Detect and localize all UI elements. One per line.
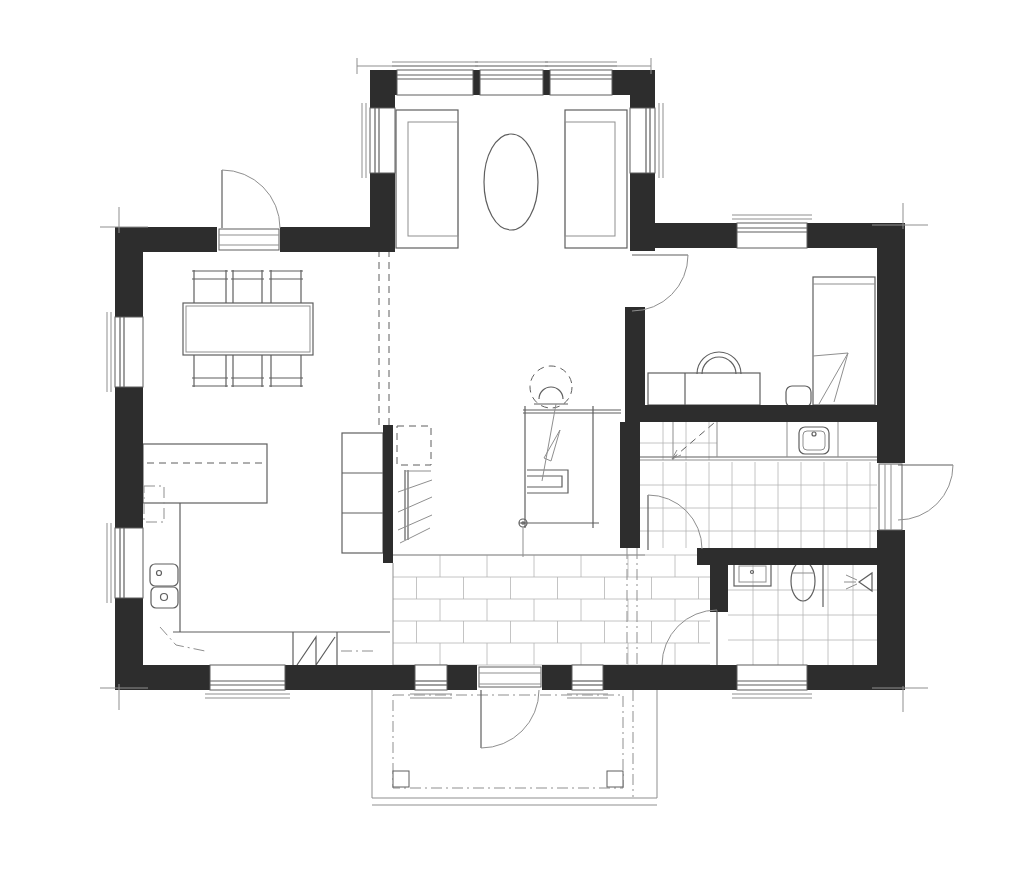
dining-table: [186, 306, 310, 352]
wall-segment: [630, 70, 655, 108]
utility-appliance-space: [672, 423, 714, 459]
floor-plan-page: [0, 0, 1024, 884]
dining-table: [183, 303, 313, 355]
door-main-entrance-swing-arc: [481, 690, 539, 748]
hall-coat-rack: [398, 497, 432, 512]
porch: [372, 690, 657, 805]
window-sunroom-top-2: [480, 70, 543, 95]
wall-segment: [543, 70, 550, 95]
door-bedroom-swing-arc: [632, 255, 688, 311]
window-sunroom-top-3: [550, 70, 612, 95]
window-kitchen-left: [115, 528, 143, 598]
sunroom-sofa-left: [408, 122, 458, 236]
kitchen-counter-corner: [160, 627, 205, 651]
wall-segment: [620, 422, 640, 548]
wall-segment: [447, 665, 477, 690]
utility-sink: [803, 431, 825, 450]
kitchen-counter-north: [143, 444, 267, 503]
kitchen-shelf-unit: [342, 433, 383, 553]
window-kitchen-bottom: [210, 665, 285, 690]
nightstand: [786, 386, 811, 407]
window-wc-bottom: [737, 665, 807, 690]
wall-segment: [115, 387, 143, 528]
hall-coat-rack: [398, 480, 432, 492]
bedroom-chair: [697, 352, 741, 374]
wall-segment: [370, 173, 395, 252]
wall-segment: [542, 665, 572, 690]
kitchen-sink: [151, 587, 178, 608]
window-bedroom-top: [737, 223, 807, 248]
door-utility-swing-arc: [648, 495, 702, 549]
wall-segment: [115, 227, 143, 317]
bed: [813, 277, 875, 405]
kitchen-appliance-dashdot: [144, 486, 164, 522]
window-hall-bottom-1: [415, 665, 447, 690]
windows: [107, 62, 812, 698]
bed-blanket-fold: [813, 353, 848, 404]
doors: [219, 170, 953, 748]
sunroom-sofa-right: [565, 122, 615, 236]
annotations: [100, 58, 928, 712]
wall-segment: [473, 70, 480, 95]
fireplace-bench: [527, 476, 562, 487]
wc-sink: [751, 571, 754, 574]
window-sunroom-right: [630, 108, 655, 173]
wc-shower-symbol: [846, 575, 857, 580]
wall-segment: [877, 223, 905, 463]
bedroom-desk: [648, 373, 760, 405]
wc-shower-symbol: [859, 573, 872, 591]
bed-blanket-fold: [834, 353, 848, 402]
wall-segment: [697, 548, 877, 565]
floor-plan-drawing: [0, 0, 1024, 884]
window-dining-left: [115, 317, 143, 387]
sunroom-sofa-left: [396, 110, 458, 248]
sunroom-oval-table: [484, 134, 538, 230]
kitchen-sink: [150, 564, 178, 586]
wall-segment: [625, 405, 877, 422]
wall-segment: [630, 223, 737, 248]
wc-shower-symbol: [846, 584, 857, 589]
slab-dining-exterior: [219, 229, 279, 250]
wall-segment: [383, 425, 393, 563]
door-wc-swing-arc: [662, 610, 717, 665]
window-hall-bottom-2: [572, 665, 603, 690]
porch-post: [393, 771, 409, 787]
hall-coat-rack: [398, 515, 432, 530]
wall-segment: [625, 307, 645, 407]
sunroom-sofa-right: [565, 110, 627, 248]
fireplace-stove: [539, 387, 563, 399]
door-dining-exterior-swing-arc: [222, 170, 280, 228]
wall-segment: [115, 665, 210, 690]
kitchen-sink: [161, 594, 168, 601]
kitchen-sink: [157, 571, 162, 576]
hall-wardrobe-dashed: [397, 426, 431, 465]
window-sunroom-top-1: [397, 70, 473, 95]
bedroom-chair: [702, 357, 736, 374]
door-utility-exterior-swing-arc: [898, 465, 953, 520]
window-sunroom-left: [370, 108, 395, 173]
wall-segment: [807, 665, 905, 690]
wall-segment: [603, 665, 737, 690]
wall-segment: [710, 565, 728, 612]
utility-sink: [812, 432, 816, 436]
wall-segment: [285, 665, 415, 690]
porch-post: [607, 771, 623, 787]
kitchen-stove-symbol: [297, 637, 335, 665]
wall-segment: [370, 70, 395, 108]
